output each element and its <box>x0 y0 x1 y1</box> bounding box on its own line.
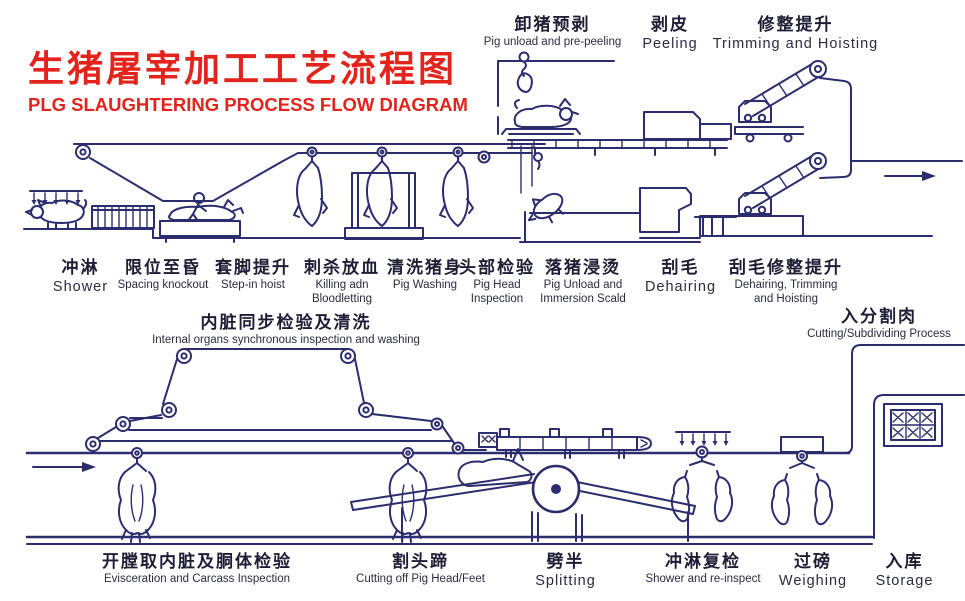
stunning-pen <box>92 206 154 228</box>
label-storage: 入库 Storage <box>862 547 947 590</box>
label-head-inspection: 头部检验 Pig Head Inspection <box>452 253 542 307</box>
flow-arrow-right <box>885 171 936 181</box>
hanging-pig <box>364 148 397 227</box>
label-shower-zh: 冲淋 <box>38 253 123 278</box>
label-weighing-zh: 过磅 <box>768 547 858 572</box>
label-weighing-en: Weighing <box>768 572 858 590</box>
label-head-inspection-en: Pig Head Inspection <box>452 278 542 307</box>
hanging-pig <box>440 148 473 227</box>
diagram-title: 生猪屠宰加工工艺流程图 PLG SLAUGHTERING PROCESS FLO… <box>28 40 478 116</box>
inspection-loop <box>86 349 486 454</box>
label-evisceration: 开膛取内脏及胴体检验 Evisceration and Carcass Insp… <box>72 547 322 586</box>
label-immersion-scald: 落猪浸烫 Pig Unload and Immersion Scald <box>533 253 633 307</box>
bloodletting-frame <box>345 173 423 239</box>
label-splitting: 劈半 Splitting <box>518 547 613 590</box>
title-chinese: 生猪屠宰加工工艺流程图 <box>28 40 478 92</box>
label-step-in-hoist: 套脚提升 Step-in hoist <box>203 253 303 292</box>
label-unload-prepeel-zh: 卸猪预剥 <box>460 10 645 35</box>
label-killing-bloodletting: 刺杀放血 Killing adn Bloodletting <box>296 253 388 307</box>
flow-arrow-left <box>33 462 96 472</box>
label-trimming-hoisting: 修整提升 Trimming and Hoisting <box>708 10 883 53</box>
label-cut-head-feet: 割头蹄 Cutting off Pig Head/Feet <box>328 547 513 586</box>
label-evisceration-en: Evisceration and Carcass Inspection <box>72 572 322 586</box>
peeling-machine <box>644 112 731 139</box>
scalding-tank <box>520 185 700 242</box>
label-dehairing-trimming-hoisting-zh: 刮毛修整提升 <box>712 253 860 278</box>
title-english: PLG SLAUGHTERING PROCESS FLOW DIAGRAM <box>28 94 478 116</box>
label-splitting-en: Splitting <box>518 572 613 590</box>
label-spacing-knockout-en: Spacing knockout <box>113 278 213 292</box>
label-step-in-hoist-zh: 套脚提升 <box>203 253 303 278</box>
ground-line-lower <box>27 537 872 544</box>
label-killing-bloodletting-zh: 刺杀放血 <box>296 253 388 278</box>
hanging-pig <box>294 148 327 227</box>
hanging-carcass <box>119 448 156 542</box>
label-killing-bloodletting-en: Killing adn Bloodletting <box>296 278 388 307</box>
dehairing-machine <box>640 188 736 235</box>
label-cutting-subdividing-en: Cutting/Subdividing Process <box>795 327 963 341</box>
label-step-in-hoist-en: Step-in hoist <box>203 278 303 292</box>
label-cutting-subdividing: 入分割肉 Cutting/Subdividing Process <box>795 302 963 341</box>
hanging-carcasses <box>119 448 427 542</box>
label-spacing-knockout: 限位至昏 Spacing knockout <box>113 253 213 292</box>
label-spacing-knockout-zh: 限位至昏 <box>113 253 213 278</box>
label-shower-reinspect-en: Shower and re-inspect <box>628 572 778 586</box>
label-cutting-subdividing-zh: 入分割肉 <box>795 302 963 327</box>
label-internal-organs-inspection-zh: 内脏同步检验及清洗 <box>112 308 460 333</box>
reinspect-shower <box>672 432 732 521</box>
label-internal-organs-inspection: 内脏同步检验及清洗 Internal organs synchronous in… <box>112 308 460 347</box>
label-peeling: 剥皮 Peeling <box>625 10 715 53</box>
label-peeling-en: Peeling <box>625 35 715 53</box>
label-unload-prepeel-en: Pig unload and pre-peeling <box>460 35 645 49</box>
hanging-pigs <box>294 148 473 227</box>
label-head-inspection-zh: 头部检验 <box>452 253 542 278</box>
label-dehairing-trimming-hoisting: 刮毛修整提升 Dehairing, Trimming and Hoisting <box>712 253 860 307</box>
label-storage-en: Storage <box>862 572 947 590</box>
label-immersion-scald-en: Pig Unload and Immersion Scald <box>533 278 633 307</box>
weighing-scale <box>772 437 832 524</box>
label-splitting-zh: 劈半 <box>518 547 613 572</box>
upper-hoist <box>735 61 826 142</box>
label-trimming-hoisting-en: Trimming and Hoisting <box>708 35 883 53</box>
label-shower-reinspect: 冲淋复检 Shower and re-inspect <box>628 547 778 586</box>
label-peeling-zh: 剥皮 <box>625 10 715 35</box>
flow-diagram-page: 生猪屠宰加工工艺流程图 PLG SLAUGHTERING PROCESS FLO… <box>0 0 965 601</box>
label-trimming-hoisting-zh: 修整提升 <box>708 10 883 35</box>
corner-guides <box>845 345 964 538</box>
label-evisceration-zh: 开膛取内脏及胴体检验 <box>72 547 322 572</box>
lower-hoist <box>640 153 932 238</box>
label-internal-organs-inspection-en: Internal organs synchronous inspection a… <box>112 333 460 347</box>
ground-line-upper <box>24 229 520 238</box>
label-storage-zh: 入库 <box>862 547 947 572</box>
splitting-saw <box>351 449 695 541</box>
merge-chute <box>820 78 962 178</box>
label-cut-head-feet-en: Cutting off Pig Head/Feet <box>328 572 513 586</box>
storage-rack <box>884 404 942 446</box>
label-shower: 冲淋 Shower <box>38 253 123 296</box>
label-unload-prepeel: 卸猪预剥 Pig unload and pre-peeling <box>460 10 645 49</box>
label-cut-head-feet-zh: 割头蹄 <box>328 547 513 572</box>
label-shower-reinspect-zh: 冲淋复检 <box>628 547 778 572</box>
label-immersion-scald-zh: 落猪浸烫 <box>533 253 633 278</box>
label-shower-en: Shower <box>38 278 123 296</box>
label-weighing: 过磅 Weighing <box>768 547 858 590</box>
